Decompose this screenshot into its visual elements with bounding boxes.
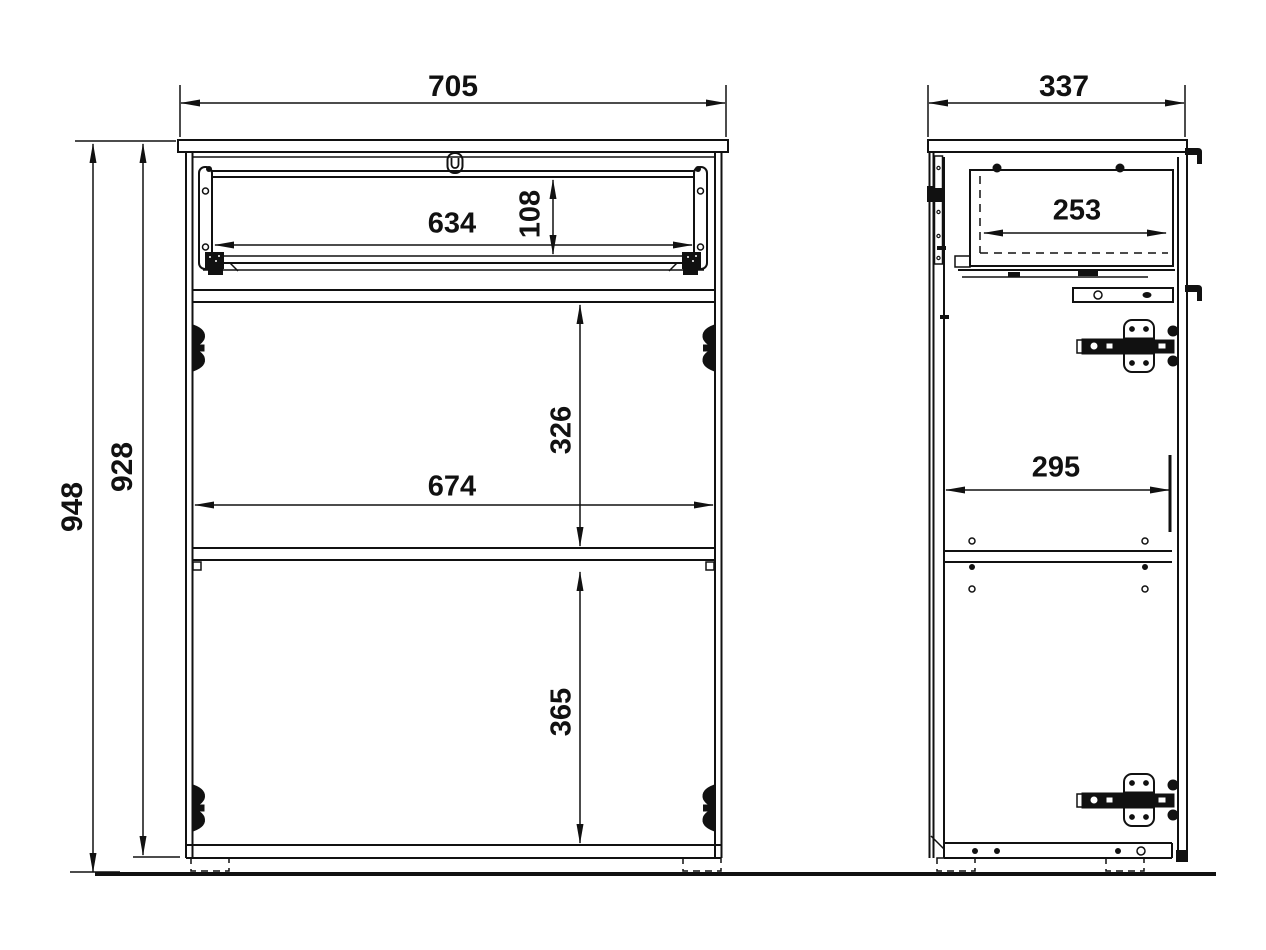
- front-hinge-top-right: [703, 325, 715, 371]
- side-view: [927, 140, 1202, 871]
- front-shelf-middle: [193, 548, 716, 570]
- side-shelf-holes: [969, 538, 1148, 592]
- side-shelf-middle: [944, 551, 1172, 562]
- side-foot-front: [937, 858, 975, 871]
- dim-label-337: 337: [1039, 72, 1089, 102]
- dim-label-295: 295: [1032, 454, 1080, 483]
- front-hinge-bottom-left: [193, 785, 205, 831]
- dim-label-705: 705: [428, 72, 478, 102]
- dim-label-253: 253: [1053, 197, 1101, 226]
- dim-label-674: 674: [428, 473, 476, 502]
- front-top-panel: [178, 140, 728, 157]
- dim-label-365: 365: [548, 688, 577, 736]
- front-foot-left: [191, 858, 229, 871]
- side-bottom-panel: [931, 836, 1187, 862]
- front-hinge-top-left: [193, 325, 205, 371]
- side-hinge-bottom: [1077, 774, 1178, 826]
- side-top-panel: [928, 140, 1187, 152]
- side-foot-back: [1106, 858, 1144, 871]
- dim-label-326: 326: [548, 406, 577, 454]
- side-back-edge: [1178, 152, 1187, 862]
- front-hinge-bottom-right: [703, 785, 715, 831]
- side-mounting-bracket: [1073, 288, 1173, 302]
- front-shelf-upper: [193, 290, 716, 302]
- side-hinge-top: [1077, 320, 1178, 372]
- dim-label-928: 928: [108, 442, 138, 492]
- dim-label-634: 634: [428, 210, 476, 239]
- dim-line-928: [133, 144, 180, 857]
- front-foot-right: [683, 858, 721, 871]
- front-bottom-panel: [186, 845, 722, 858]
- dim-label-108: 108: [517, 190, 546, 238]
- dim-label-948: 948: [58, 482, 88, 532]
- technical-drawing-canvas: 705 337 948 928 634 108 326 674 365 253 …: [0, 0, 1266, 950]
- dimension-lines: [70, 85, 1185, 872]
